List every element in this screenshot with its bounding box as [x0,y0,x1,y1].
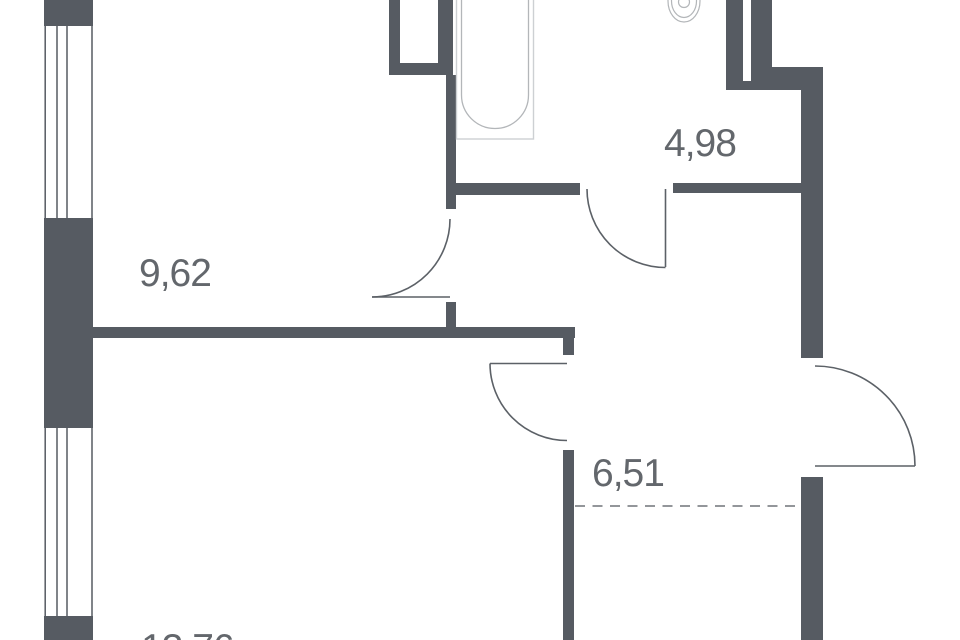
wall-left-top [44,0,93,26]
plan-drawing [0,0,960,640]
door-bathroom [587,189,666,268]
wall-bathroom-left-upper [446,75,456,209]
door-swing-arc [490,364,567,441]
window-lower [45,428,92,616]
wall-bathroom-bottom-left [456,183,580,195]
room-area-label-room: 9,62 [139,254,211,293]
door-kitchen [490,364,567,441]
wall-niche-bottom [389,63,453,75]
wall-right-lower [801,477,823,640]
wall-bathroom-bottom-right [673,183,801,193]
wall-kitchen-lower [563,450,574,640]
wall-left-bottom [44,616,93,640]
ventilation-shaft-slot [743,0,751,81]
wall-kitchen-stub [563,338,574,355]
bathtub [457,0,534,139]
sink [668,0,700,22]
window-upper [45,26,92,218]
wall-top-right-step [772,67,823,90]
floor-plan: 9,62 4,98 6,51 13,76 [0,0,960,640]
room-area-label-living-room: 13,76 [141,629,234,640]
room-area-label-kitchen-niche: 6,51 [592,454,664,493]
wall-left-middle-pier [44,218,93,428]
sink-drain [679,0,690,8]
door-swing-arc [815,366,915,466]
bathtub-rim [457,0,534,139]
door-room [372,219,450,297]
door-balcony [815,366,915,466]
wall-hall-bottom [92,327,575,338]
room-area-label-bathroom: 4,98 [664,124,736,163]
door-swing-arc [372,219,450,297]
wall-right-upper [801,90,823,358]
door-swing-arc [587,189,666,268]
